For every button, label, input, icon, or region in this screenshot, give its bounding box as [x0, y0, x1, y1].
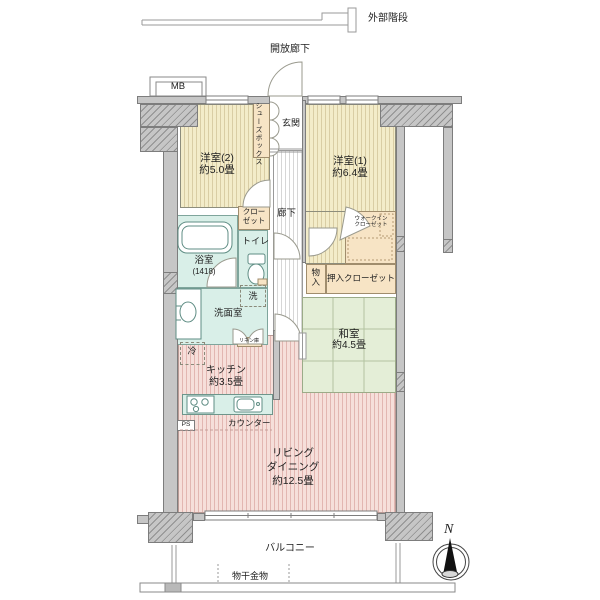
bedroom2-size: 約5.0畳 [199, 164, 235, 176]
bathroom-name: 浴室 [192, 256, 215, 267]
exterior-stairs-outline [142, 8, 356, 32]
washer-label: 洗 [248, 291, 257, 301]
fridge-label: 冷 [187, 346, 196, 356]
laundry-label: 物干金物 [232, 571, 268, 581]
balcony-window-band [205, 511, 377, 520]
window-icons-top [206, 96, 378, 104]
toilet-fixture [248, 254, 267, 285]
washitsu-sliding-door [299, 333, 306, 359]
compass-n-label: N [444, 522, 453, 538]
closet-line2: ゼット [243, 217, 266, 226]
wic-line2: クローゼット [354, 222, 387, 228]
hallway-label: 廊下 [277, 209, 296, 220]
compass-icon [433, 538, 469, 580]
bathroom-size: (1418) [192, 267, 215, 276]
bedroom1-size: 約6.4畳 [332, 167, 368, 179]
washroom-label: 洗面室 [214, 309, 243, 320]
storage-label: 物入 [310, 268, 320, 292]
vanity-sink [176, 289, 201, 339]
linen-label: リネン庫 [239, 339, 259, 345]
toilet-label: トイレ [242, 236, 269, 246]
bedroom2-label: 洋室(2) 約5.0畳 [199, 152, 235, 176]
door-bedroom2 [243, 180, 270, 207]
closet-bedroom2-label: クロー ゼット [243, 208, 266, 225]
living-line3: 約12.5畳 [267, 475, 320, 489]
plan-linework [0, 0, 600, 600]
kitchen-size: 約3.5畳 [206, 377, 246, 389]
counter-label: カウンター [228, 419, 271, 429]
washitsu-label: 和室 約4.5畳 [332, 328, 366, 352]
floor-plan: 外部階段 開放廊下 MB 洋室(2) 約5.0畳 洋室(1) 約6.4畳 シュー… [0, 0, 600, 600]
wic-label: ウォークイン クローゼット [354, 216, 387, 229]
entrance-label: 玄関 [282, 118, 300, 128]
bedroom1-name: 洋室(1) [332, 155, 368, 167]
meter-box-label: MB [171, 82, 185, 93]
washitsu-size: 約4.5畳 [332, 340, 366, 352]
kitchen-label: キッチン 約3.5畳 [206, 365, 246, 388]
door-bedroom1 [309, 228, 337, 256]
door-washroom [274, 233, 300, 259]
bathroom-label: 浴室 (1418) [192, 256, 215, 276]
oshiire-label: 押入クローゼット [327, 274, 395, 284]
bedroom1-label: 洋室(1) 約6.4畳 [332, 155, 368, 179]
kitchen-sink [234, 397, 262, 412]
door-hall-living [275, 314, 301, 341]
open-corridor-label: 開放廊下 [270, 44, 310, 56]
bedroom2-name: 洋室(2) [199, 152, 235, 164]
entry-door-arc [268, 62, 302, 96]
ps-label: PS [182, 421, 191, 428]
living-dining-label: リビング ダイニング 約12.5畳 [267, 447, 320, 489]
balcony-label: バルコニー [265, 543, 315, 555]
living-line2: ダイニング [267, 461, 320, 475]
bathtub [178, 222, 232, 253]
stove [187, 396, 214, 413]
kitchen-name: キッチン [206, 365, 246, 377]
shoebox-label: シューズボックス [254, 102, 262, 158]
washitsu-name: 和室 [332, 328, 366, 340]
living-line1: リビング [267, 447, 320, 461]
ext-stairs-label: 外部階段 [368, 13, 408, 25]
shoebox-door-arcs [270, 102, 279, 156]
